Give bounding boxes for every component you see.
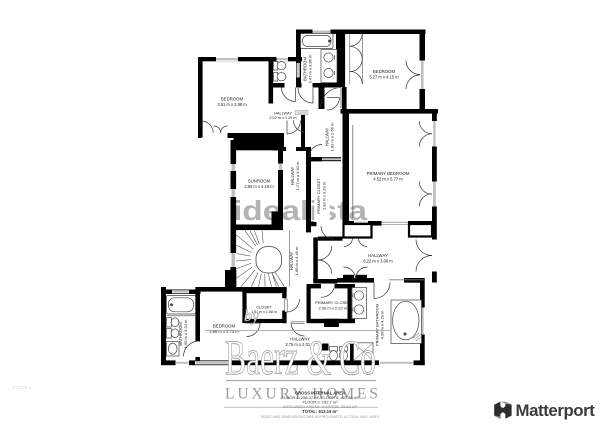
svg-text:PRIMARY CLOSET: PRIMARY CLOSET: [316, 178, 321, 214]
svg-text:by: by: [244, 308, 260, 325]
svg-text:FLOOR 2: FLOOR 2: [13, 385, 32, 390]
svg-text:2.59 m x 4.18 m: 2.59 m x 4.18 m: [244, 184, 274, 189]
svg-text:6.22 m x 3.06 m: 6.22 m x 3.06 m: [363, 259, 393, 264]
svg-text:PRIMARY BEDROOM: PRIMARY BEDROOM: [367, 171, 410, 176]
svg-text:HALLWAY: HALLWAY: [368, 253, 388, 258]
svg-text:1.83 m x 3.29 m: 1.83 m x 3.29 m: [322, 182, 327, 210]
svg-text:4.52 m x 5.77 m: 4.52 m x 5.77 m: [373, 176, 403, 181]
svg-text:2.06 m x 2.22 m: 2.06 m x 2.22 m: [318, 306, 347, 311]
svg-text:3.47 m x 3.86 m: 3.47 m x 3.86 m: [308, 54, 313, 83]
svg-text:4.98 m x 4.29 m: 4.98 m x 4.29 m: [380, 310, 385, 339]
svg-text:TOTAL: 613.19 m²: TOTAL: 613.19 m²: [302, 409, 338, 414]
svg-text:5.27 m x 4.15 m: 5.27 m x 4.15 m: [369, 75, 399, 80]
svg-text:1.88 m x 4.49 m: 1.88 m x 4.49 m: [294, 246, 299, 275]
svg-text:Baerz & Co: Baerz & Co: [225, 329, 376, 385]
svg-text:2.02 m x 1.29 m: 2.02 m x 1.29 m: [269, 116, 296, 120]
svg-text:Matterport: Matterport: [516, 401, 596, 420]
svg-text:SUNROOM: SUNROOM: [248, 179, 271, 184]
svg-text:3.51 m x 3.98 m: 3.51 m x 3.98 m: [217, 102, 247, 107]
svg-text:SIZES AND DIMENSIONS ARE APPRO: SIZES AND DIMENSIONS ARE APPROXIMATE, AC…: [261, 415, 380, 419]
svg-text:1.56 m x 3.54 m: 1.56 m x 3.54 m: [183, 319, 188, 348]
svg-text:1.27 m x 4.90 m: 1.27 m x 4.90 m: [295, 161, 300, 190]
svg-text:BEDROOM: BEDROOM: [213, 324, 236, 329]
svg-text:PRIMARY CLOSET: PRIMARY CLOSET: [315, 300, 351, 305]
svg-text:HALLWAY: HALLWAY: [274, 111, 292, 116]
svg-text:BEDROOM: BEDROOM: [373, 69, 396, 74]
svg-text:BEDROOM: BEDROOM: [221, 97, 244, 102]
svg-text:1.83 m x 2.66 m: 1.83 m x 2.66 m: [330, 122, 335, 151]
